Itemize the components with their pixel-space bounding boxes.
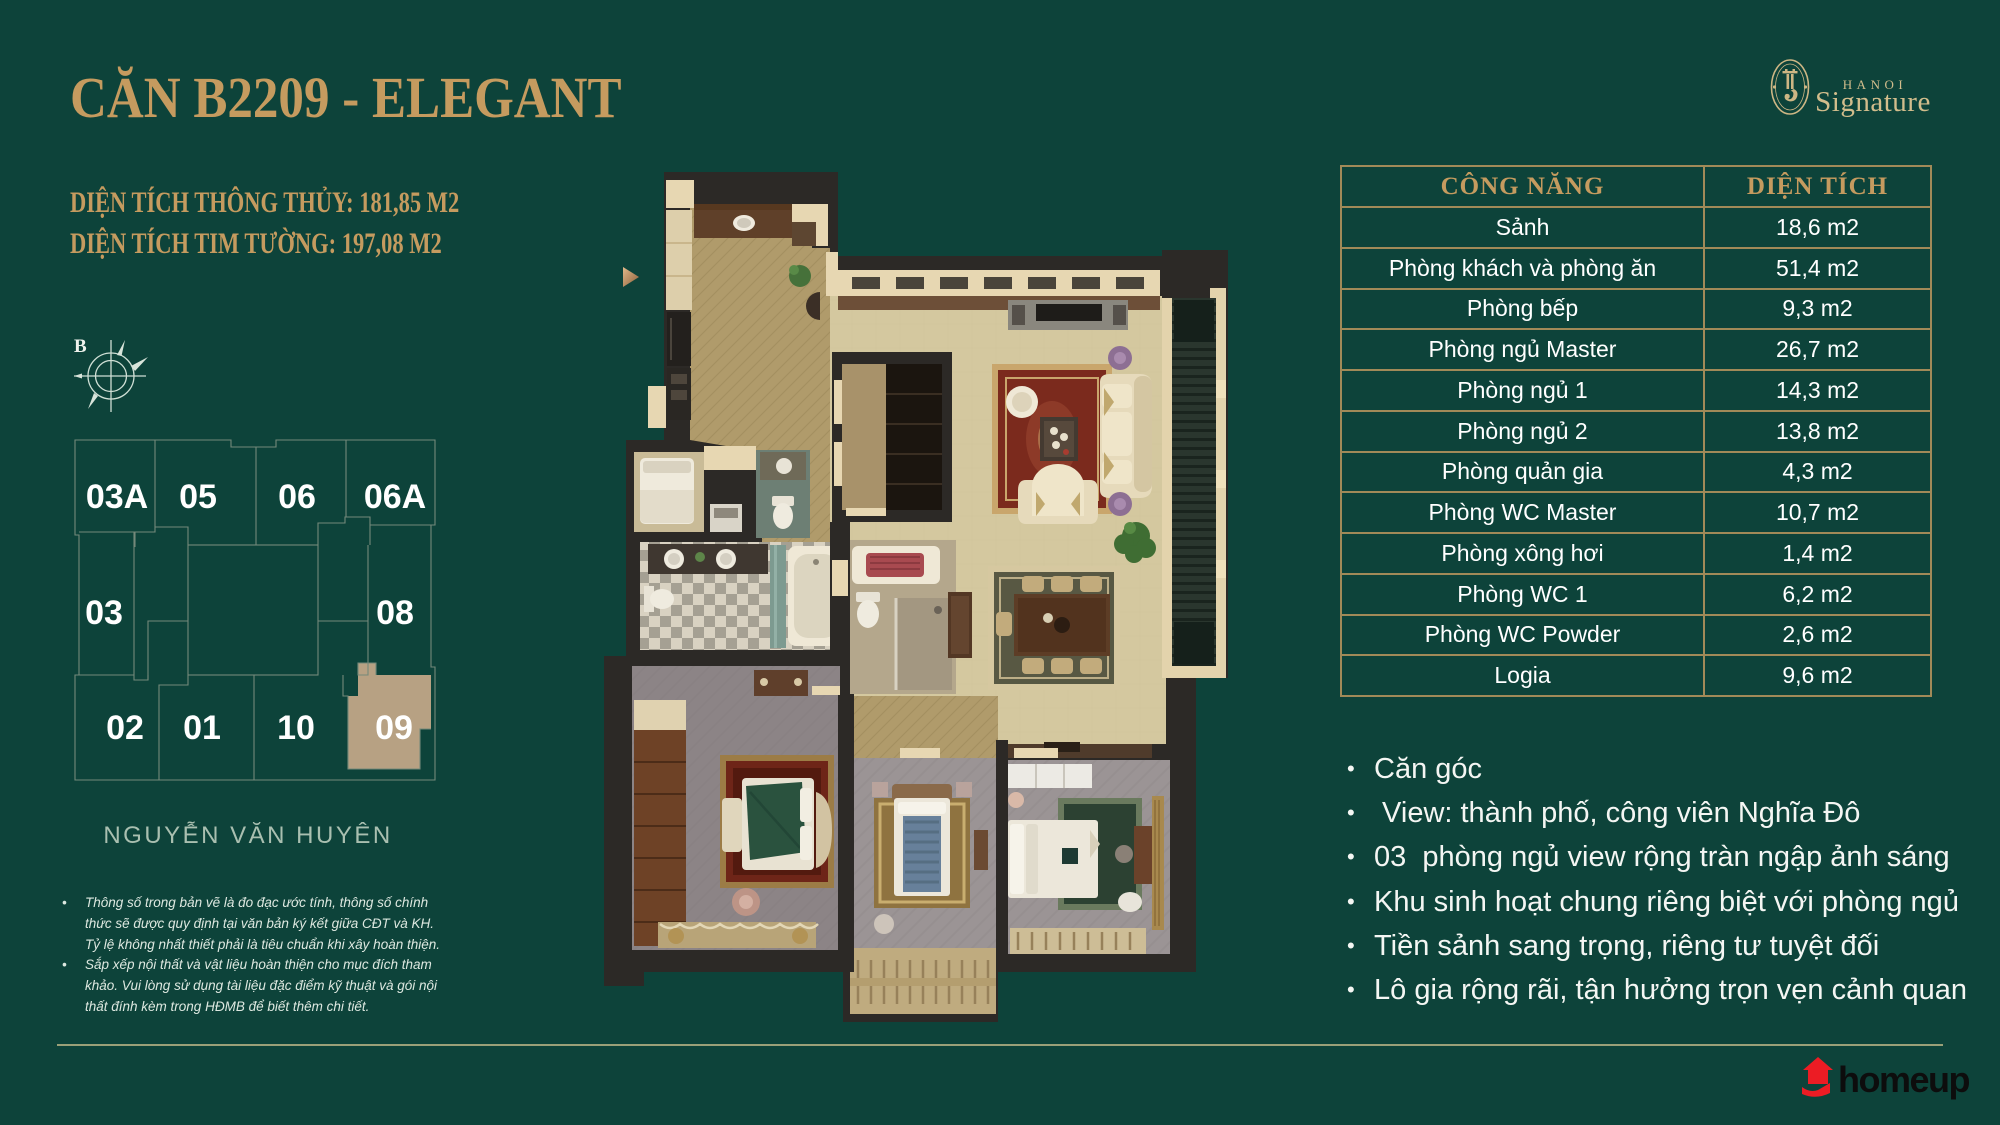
svg-text:05: 05 (179, 478, 217, 516)
svg-text:06A: 06A (364, 478, 426, 516)
svg-text:09: 09 (375, 709, 413, 747)
svg-text:B: B (74, 336, 87, 357)
svg-text:03: 03 (85, 594, 123, 632)
svg-text:01: 01 (183, 709, 221, 747)
svg-text:08: 08 (376, 594, 414, 632)
svg-text:10: 10 (277, 709, 315, 747)
svg-text:03A: 03A (86, 478, 148, 516)
svg-text:Signature: Signature (1815, 86, 1931, 118)
svg-text:06: 06 (278, 478, 316, 516)
svg-text:02: 02 (106, 709, 144, 747)
svg-text:homeup: homeup (1838, 1059, 1970, 1100)
